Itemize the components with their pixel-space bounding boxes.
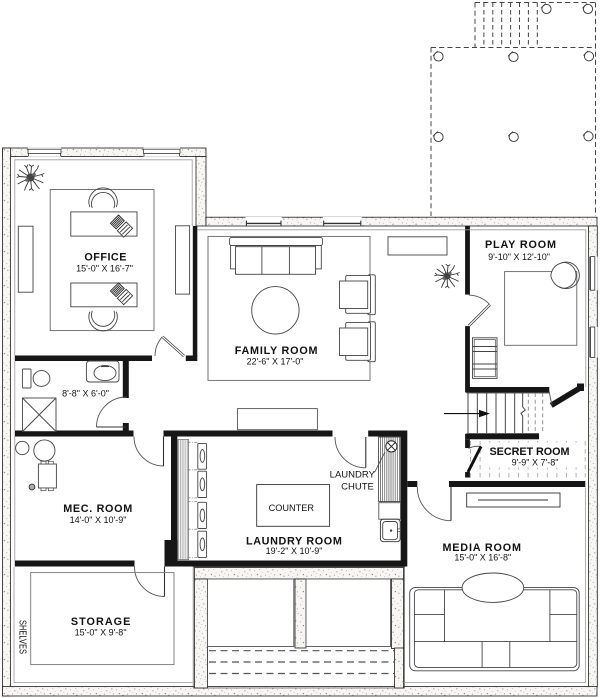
- svg-text:15'-0" X 16'-8": 15'-0" X 16'-8": [454, 553, 511, 563]
- svg-text:15'-0" X 16'-7": 15'-0" X 16'-7": [76, 264, 133, 274]
- svg-text:14'-0" X 10'-9": 14'-0" X 10'-9": [70, 515, 127, 525]
- svg-text:SHELVES: SHELVES: [17, 620, 28, 654]
- svg-text:SECRET ROOM: SECRET ROOM: [490, 446, 570, 458]
- svg-text:9'-10" X 12'-10": 9'-10" X 12'-10": [488, 252, 550, 262]
- svg-text:FAMILY ROOM: FAMILY ROOM: [235, 345, 318, 357]
- svg-text:22'-6" X 17'-0": 22'-6" X 17'-0": [247, 357, 304, 367]
- svg-text:PLAY ROOM: PLAY ROOM: [485, 239, 556, 251]
- svg-text:15'-0" X 9'-8": 15'-0" X 9'-8": [75, 628, 127, 638]
- svg-text:CHUTE: CHUTE: [341, 482, 374, 493]
- svg-text:LAUNDRY: LAUNDRY: [330, 470, 376, 481]
- svg-text:8'-8" X 6'-0": 8'-8" X 6'-0": [62, 389, 109, 399]
- svg-text:9'-9" X 7'-8": 9'-9" X 7'-8": [512, 458, 559, 468]
- svg-text:COUNTER: COUNTER: [269, 503, 315, 513]
- svg-text:MEC. ROOM: MEC. ROOM: [63, 503, 132, 515]
- svg-text:19'-2" X 10'-9": 19'-2" X 10'-9": [266, 546, 323, 556]
- svg-text:OFFICE: OFFICE: [84, 252, 126, 264]
- svg-text:STORAGE: STORAGE: [71, 616, 130, 628]
